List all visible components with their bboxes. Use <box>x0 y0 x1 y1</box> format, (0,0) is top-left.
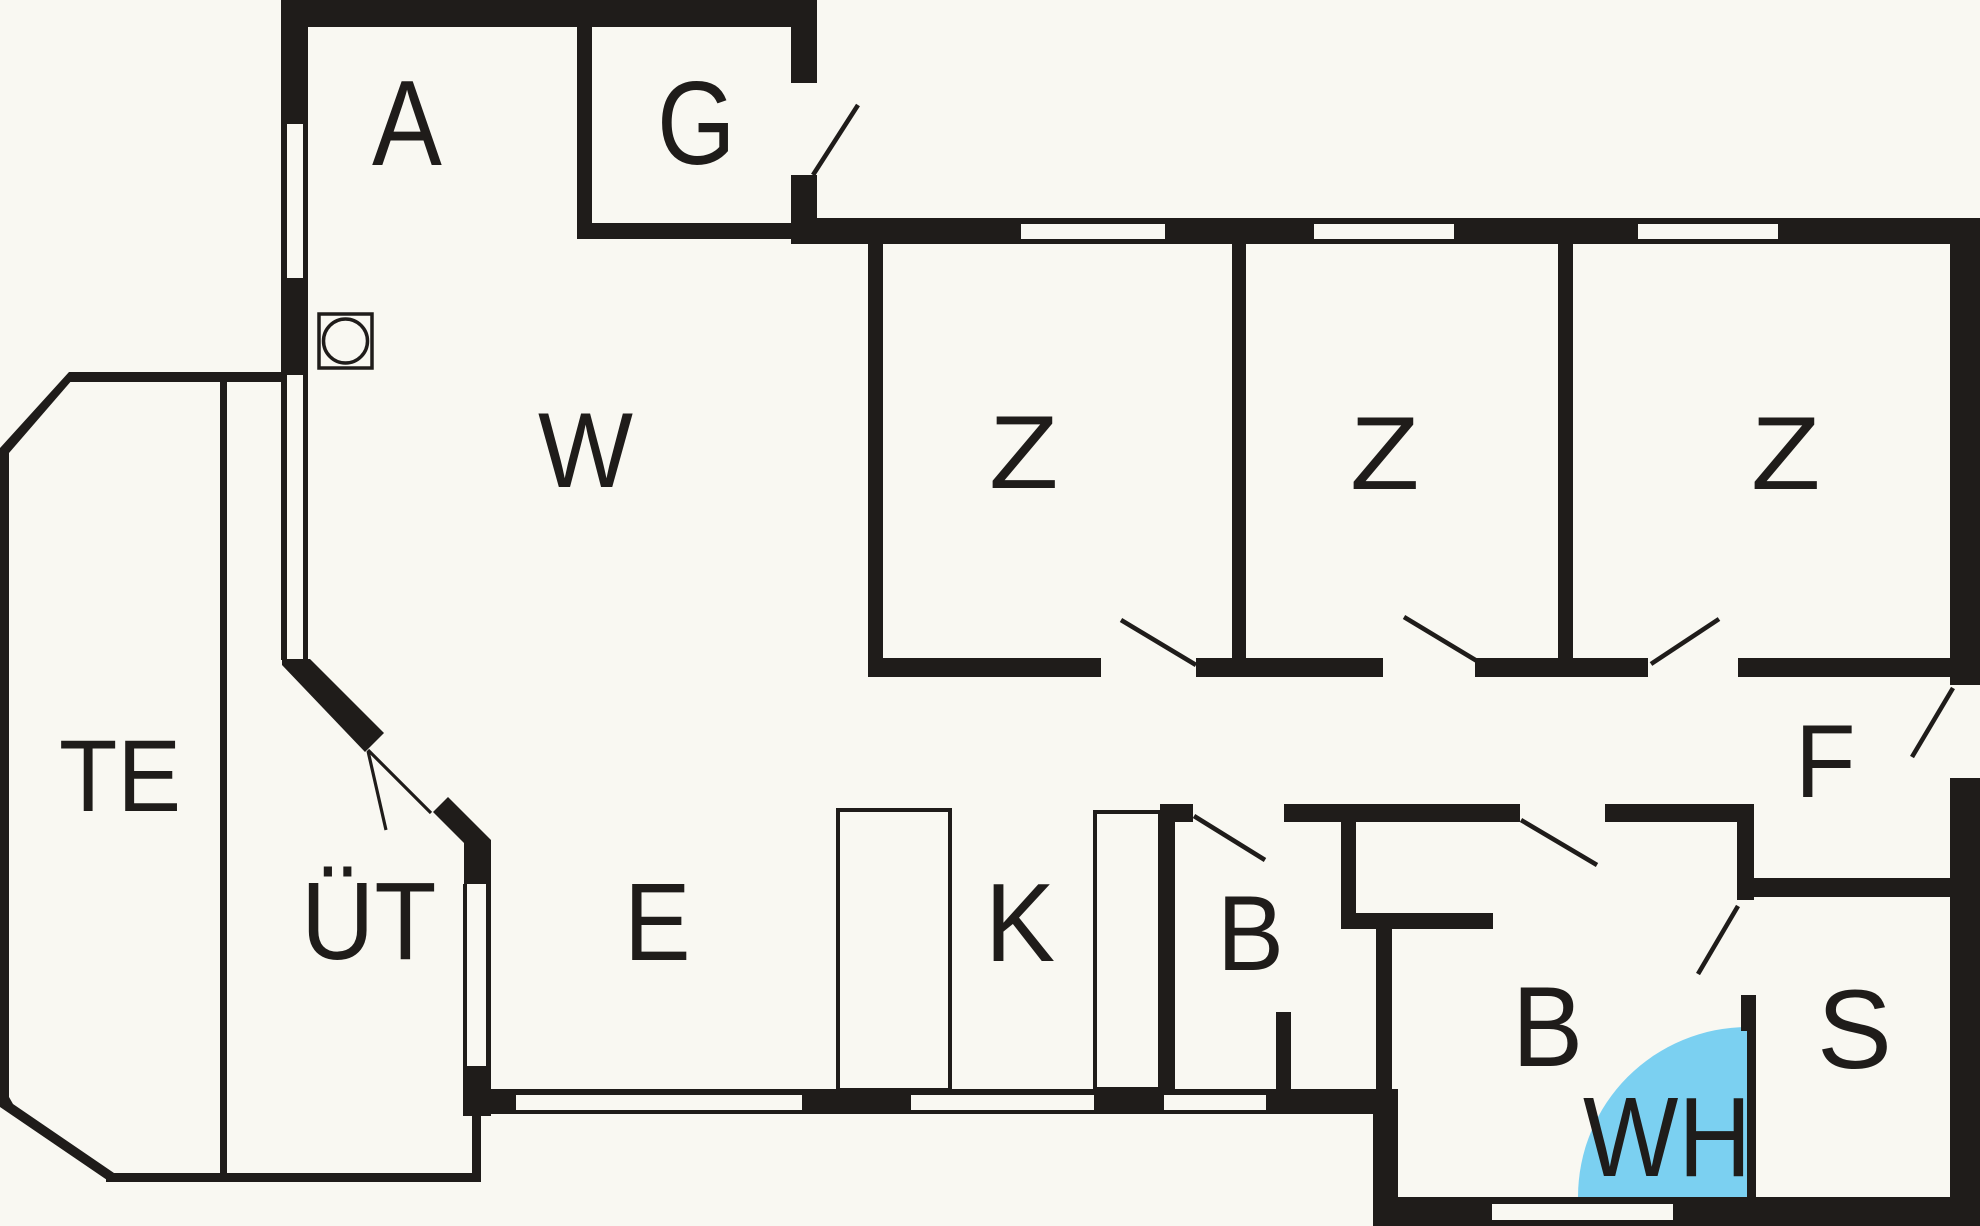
svg-text:W: W <box>538 390 633 510</box>
svg-text:Z: Z <box>1350 396 1419 512</box>
svg-text:B: B <box>1512 964 1583 1091</box>
svg-text:TE: TE <box>59 719 181 833</box>
svg-text:S: S <box>1817 967 1892 1092</box>
svg-text:A: A <box>372 55 442 191</box>
svg-text:ÜT: ÜT <box>301 860 437 983</box>
svg-text:K: K <box>985 861 1055 985</box>
svg-text:Z: Z <box>989 395 1058 511</box>
svg-text:B: B <box>1217 873 1284 993</box>
svg-text:E: E <box>624 861 691 984</box>
svg-text:Z: Z <box>1751 396 1820 512</box>
svg-text:G: G <box>657 57 736 190</box>
svg-text:F: F <box>1795 704 1856 820</box>
svg-text:WH: WH <box>1583 1074 1751 1200</box>
